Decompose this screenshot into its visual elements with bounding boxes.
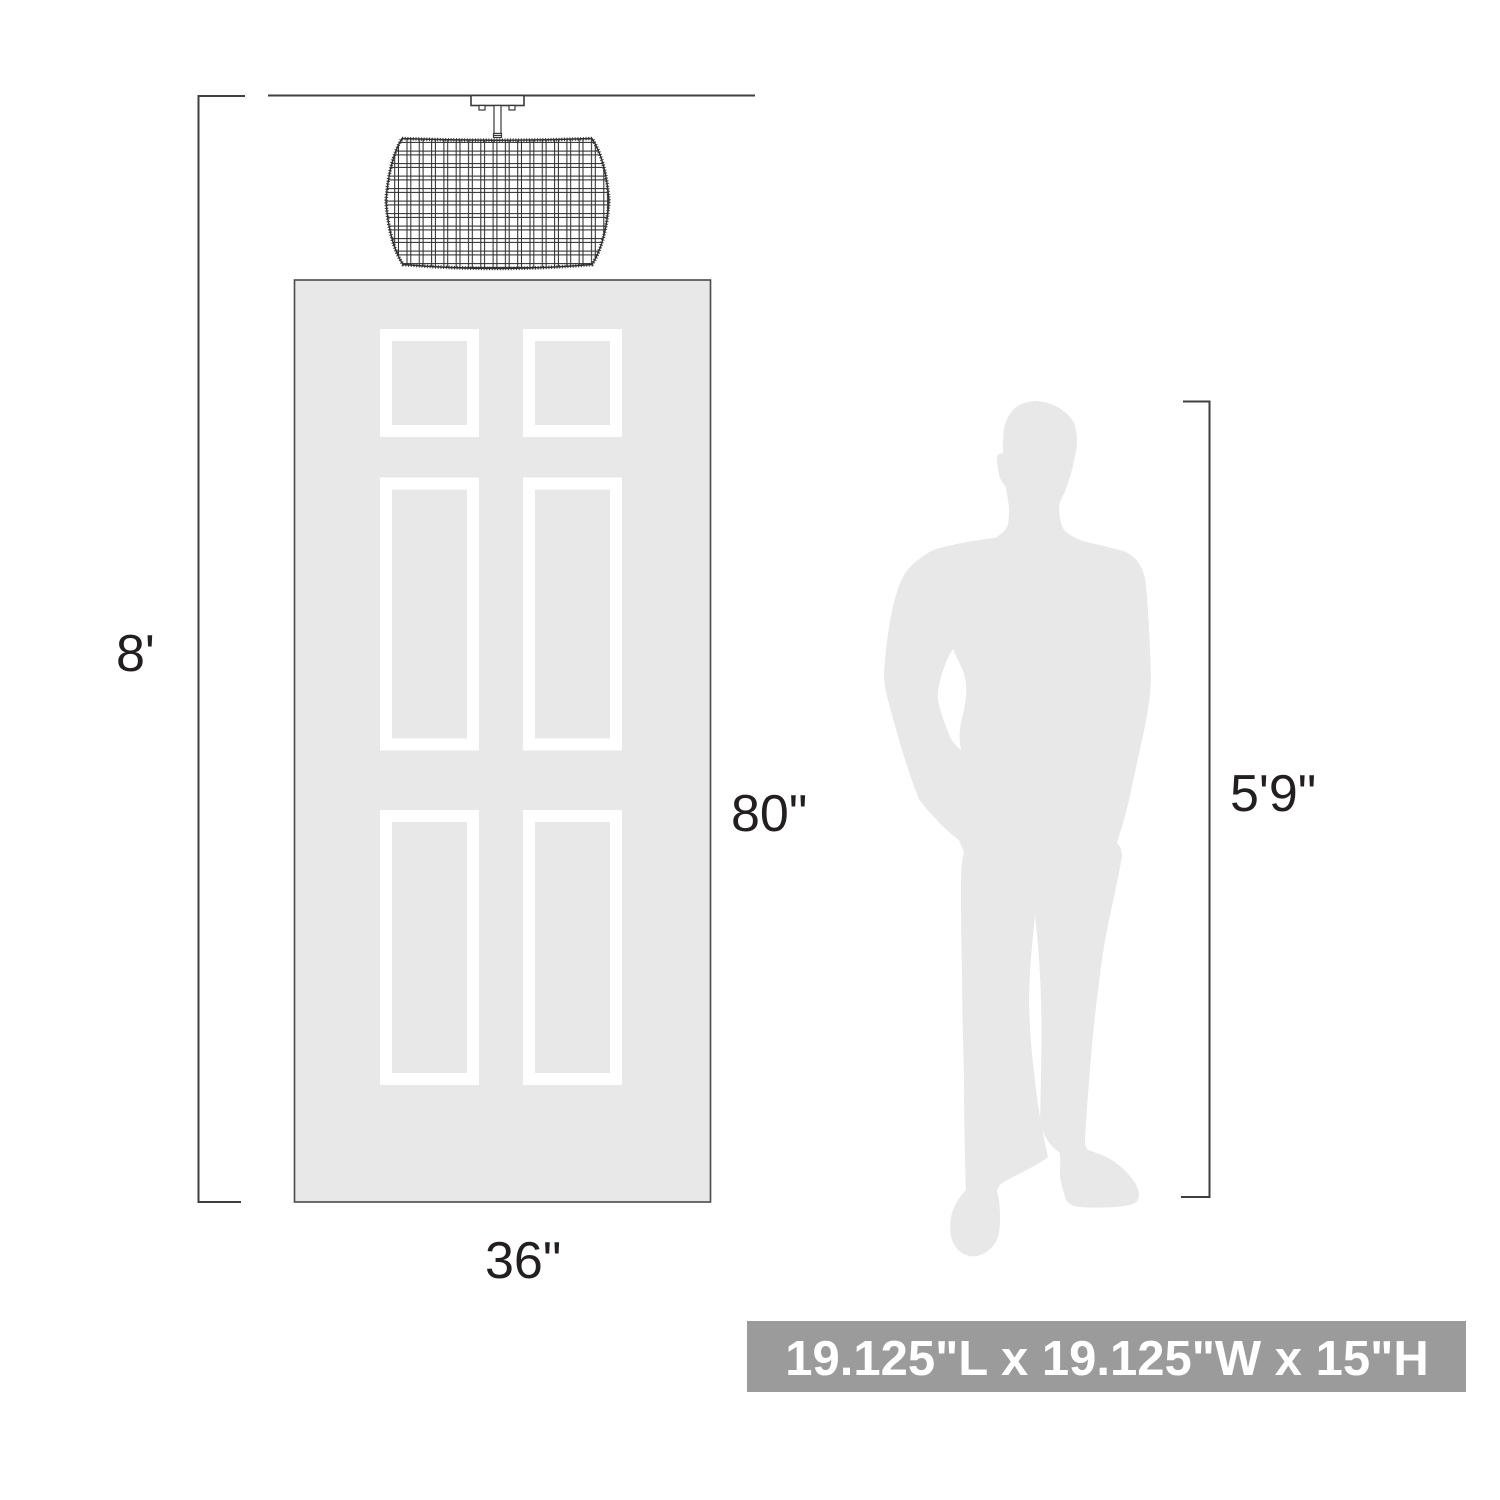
svg-text:80": 80" bbox=[731, 785, 807, 843]
svg-text:19.125"L x 19.125"W x 15"H: 19.125"L x 19.125"W x 15"H bbox=[785, 1332, 1429, 1386]
svg-text:8': 8' bbox=[116, 625, 155, 683]
svg-text:5'9": 5'9" bbox=[1230, 765, 1316, 823]
svg-text:36": 36" bbox=[485, 1232, 561, 1290]
